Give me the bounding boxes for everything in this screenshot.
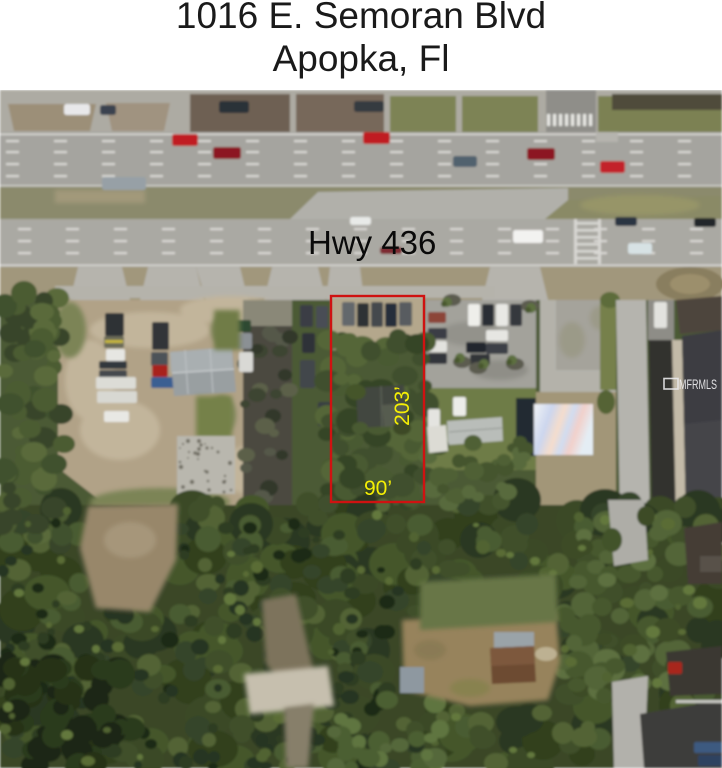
svg-text:MFRMLS: MFRMLS — [679, 376, 717, 392]
svg-text:203’: 203’ — [391, 386, 414, 426]
svg-text:90’: 90’ — [364, 477, 392, 500]
svg-text:Hwy 436: Hwy 436 — [308, 224, 436, 261]
